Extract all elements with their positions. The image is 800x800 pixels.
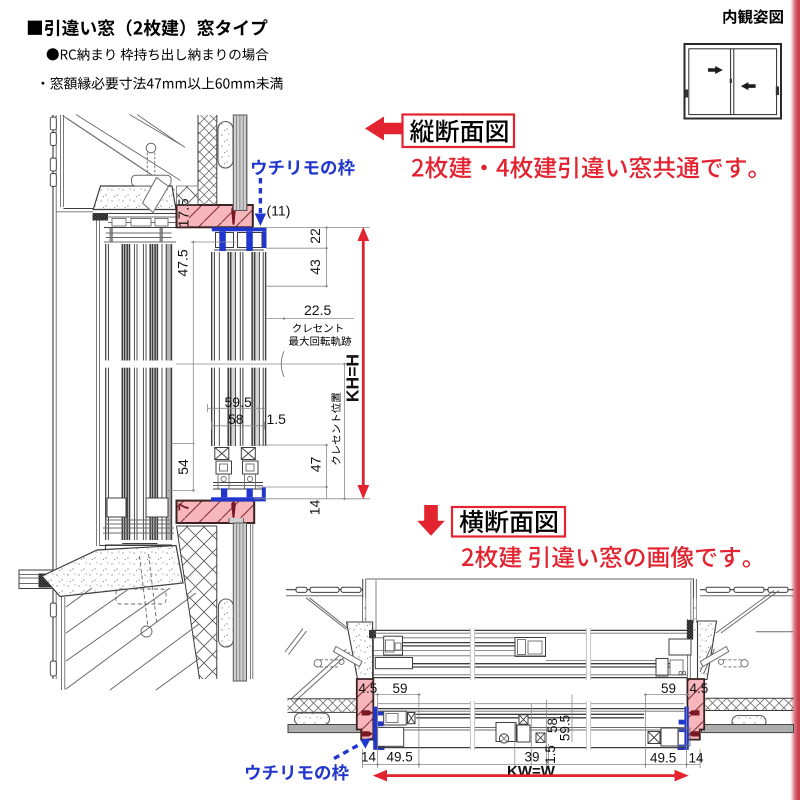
svg-text:4.5: 4.5	[690, 681, 709, 696]
svg-text:KH=H: KH=H	[343, 354, 363, 402]
svg-text:54: 54	[175, 459, 191, 475]
svg-text:4.5: 4.5	[359, 681, 378, 696]
svg-text:(11): (11)	[267, 203, 291, 219]
svg-text:1.5: 1.5	[543, 745, 558, 764]
svg-text:58: 58	[228, 411, 244, 427]
svg-text:59: 59	[393, 681, 408, 696]
svg-text:14: 14	[307, 500, 323, 516]
svg-text:KW=W: KW=W	[507, 763, 556, 780]
svg-text:7: 7	[176, 503, 193, 511]
svg-text:47: 47	[308, 457, 324, 473]
svg-text:49.5: 49.5	[387, 750, 413, 765]
svg-text:1.5: 1.5	[267, 411, 287, 427]
svg-text:43: 43	[307, 259, 323, 275]
svg-text:59.5: 59.5	[558, 715, 573, 741]
svg-text:47.5: 47.5	[175, 249, 191, 276]
svg-text:49.5: 49.5	[650, 751, 676, 766]
svg-text:22: 22	[307, 228, 323, 244]
svg-text:14: 14	[361, 750, 377, 765]
svg-text:59.5: 59.5	[225, 394, 252, 410]
svg-text:59: 59	[661, 681, 676, 696]
svg-text:22.5: 22.5	[304, 302, 331, 318]
svg-text:14: 14	[689, 751, 705, 766]
